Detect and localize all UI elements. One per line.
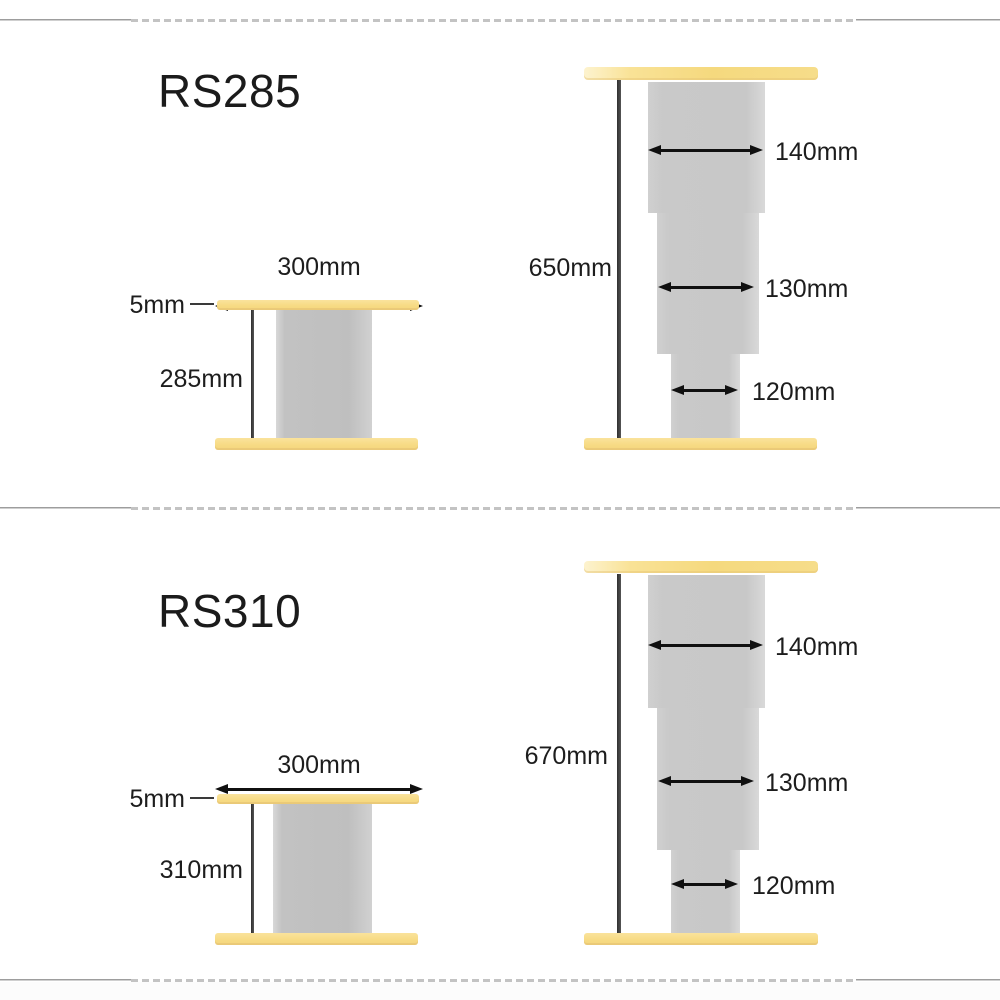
- front-view-height-dimension-line: [251, 310, 254, 438]
- thickness-leader-line: [190, 797, 214, 799]
- front-view-bottom-plate: [215, 438, 418, 450]
- front-view-column-height-label: 285mm: [160, 366, 243, 394]
- segment-1-width-arrow: [660, 149, 751, 152]
- side-view-overall-height-line: [617, 574, 621, 933]
- segment-3-width-arrow: [683, 883, 726, 886]
- side-view-bottom-plate: [584, 933, 818, 945]
- footer-band: [0, 982, 1000, 1000]
- front-view-plate-thickness-label: 5mm: [129, 786, 185, 814]
- segment-1-width-arrow: [660, 644, 751, 647]
- front-view-top-plate: [217, 300, 419, 310]
- front-view-top-width-arrow: [227, 788, 411, 791]
- divider-solid-left: [0, 979, 131, 981]
- segment-3-width-label: 120mm: [752, 873, 835, 901]
- product-dimension-sheet: RS285 300mm 5mm 285mm 650mm 140mm 130mm …: [0, 0, 1000, 1000]
- segment-1-width-label: 140mm: [775, 139, 858, 167]
- model-title: RS310: [158, 588, 301, 634]
- telescopic-segment-1: [648, 82, 765, 213]
- model-panel-rs310: RS310 300mm 5mm 310mm 670mm 140mm 130mm …: [0, 508, 1000, 980]
- side-view-overall-height-line: [617, 80, 621, 438]
- front-view-support-column: [276, 310, 372, 438]
- side-view-overall-height-label: 650mm: [529, 255, 612, 283]
- segment-2-width-label: 130mm: [765, 770, 848, 798]
- front-view-bottom-plate: [215, 933, 418, 945]
- segment-1-width-label: 140mm: [775, 634, 858, 662]
- telescopic-segment-3: [671, 354, 740, 438]
- front-view-top-plate: [217, 794, 419, 804]
- model-panel-rs285: RS285 300mm 5mm 285mm 650mm 140mm 130mm …: [0, 20, 1000, 508]
- segment-3-width-arrow: [683, 389, 726, 392]
- side-view-top-plate: [584, 561, 818, 573]
- side-view-top-plate: [584, 67, 818, 80]
- thickness-leader-line: [190, 303, 214, 305]
- divider-solid-right: [856, 979, 1000, 981]
- front-view-support-column: [273, 804, 372, 933]
- segment-2-width-label: 130mm: [765, 276, 848, 304]
- front-view-height-dimension-line: [251, 804, 254, 933]
- telescopic-segment-1: [648, 575, 765, 708]
- side-view-overall-height-label: 670mm: [525, 743, 608, 771]
- segment-2-width-arrow: [670, 286, 742, 289]
- side-view-bottom-plate: [584, 438, 817, 450]
- telescopic-segment-3: [671, 850, 740, 933]
- model-title: RS285: [158, 68, 301, 114]
- front-view-top-width-label: 300mm: [219, 254, 419, 282]
- front-view-plate-thickness-label: 5mm: [129, 292, 185, 320]
- front-view-top-width-label: 300mm: [219, 752, 419, 780]
- segment-2-width-arrow: [670, 780, 742, 783]
- segment-3-width-label: 120mm: [752, 379, 835, 407]
- front-view-column-height-label: 310mm: [160, 857, 243, 885]
